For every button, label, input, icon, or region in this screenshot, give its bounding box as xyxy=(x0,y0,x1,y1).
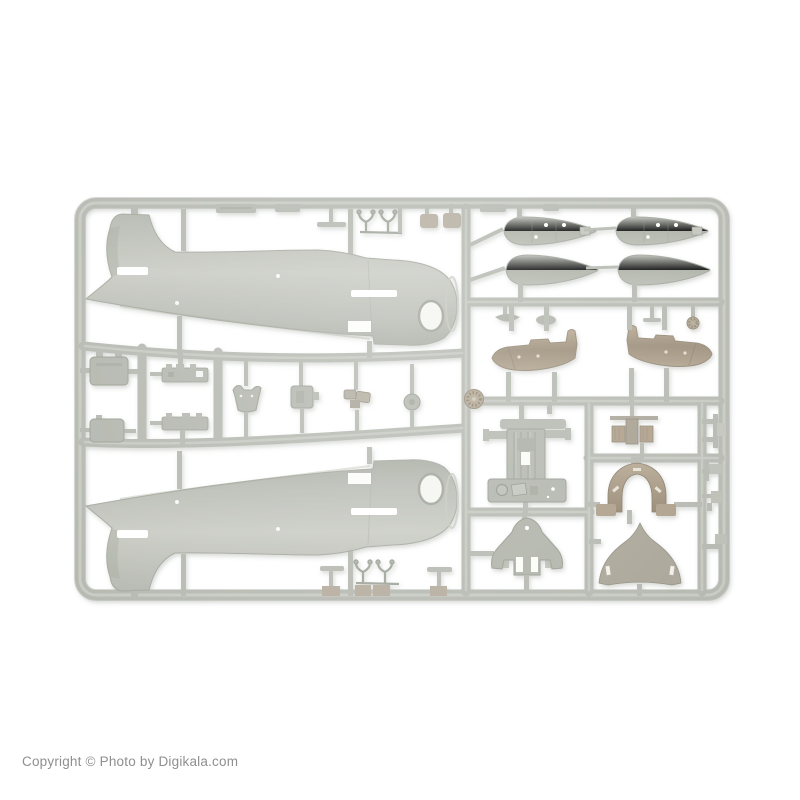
photo-light-wash xyxy=(0,0,800,800)
product-photo: Copyright © Photo by Digikala.com xyxy=(0,0,800,800)
model-kit-sprue-photo xyxy=(0,0,800,800)
watermark-text: Copyright © Photo by Digikala.com xyxy=(22,754,238,769)
